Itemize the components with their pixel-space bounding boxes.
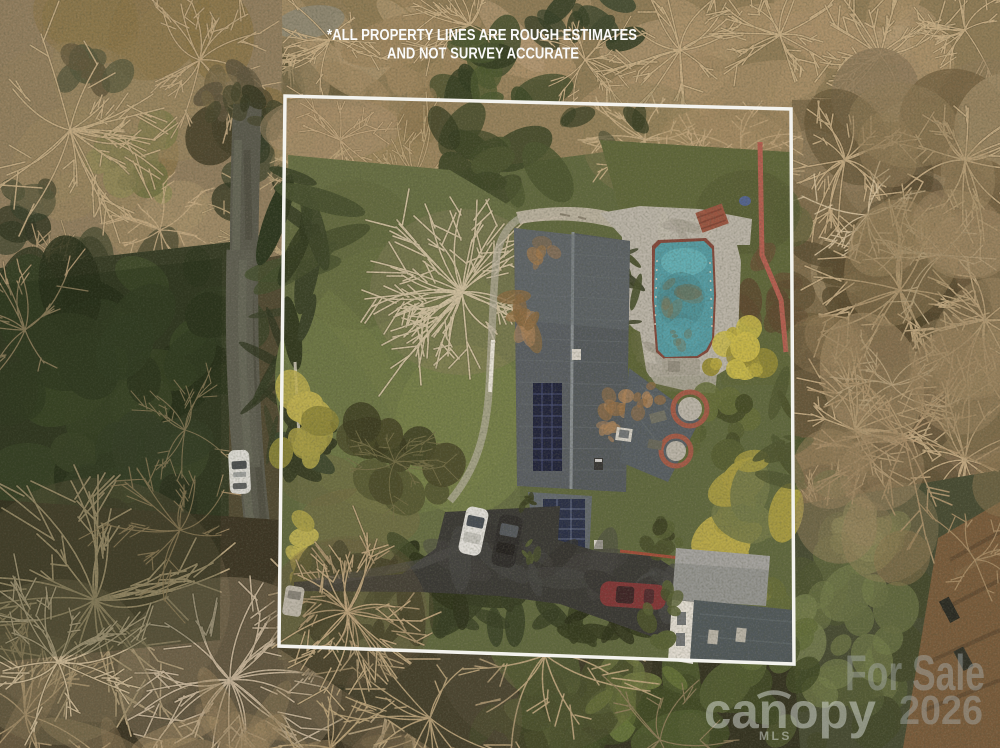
svg-text:2026: 2026	[899, 687, 983, 733]
svg-text:*ALL PROPERTY LINES ARE ROUGH: *ALL PROPERTY LINES ARE ROUGH ESTIMATES	[327, 27, 637, 44]
svg-text:MLS: MLS	[759, 729, 792, 743]
svg-text:AND NOT SURVEY ACCURATE: AND NOT SURVEY ACCURATE	[387, 46, 579, 63]
